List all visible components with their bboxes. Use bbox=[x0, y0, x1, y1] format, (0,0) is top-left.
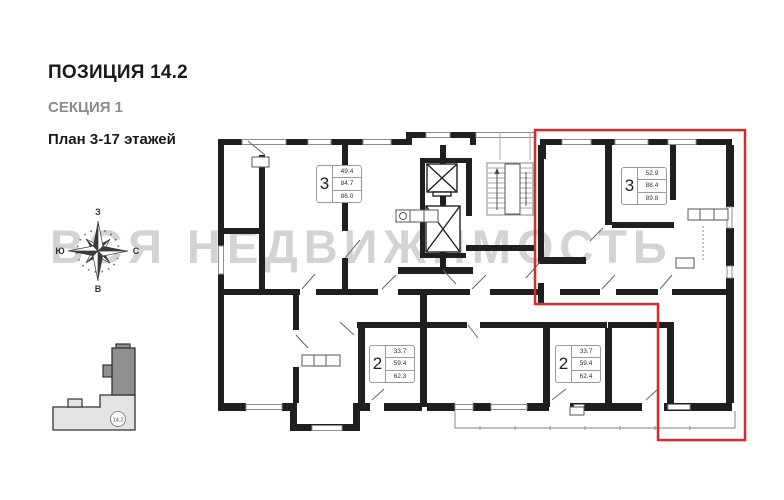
apartment-label-3room-highlighted: 3 52.9 88.4 89.8 bbox=[621, 167, 667, 205]
room-count: 2 bbox=[556, 346, 572, 382]
apartment-label-2room-right: 2 33.7 59.4 62.4 bbox=[555, 345, 601, 383]
apartment-label-3room-left: 3 49.4 84.7 86.0 bbox=[316, 165, 362, 203]
room-count: 2 bbox=[370, 346, 386, 382]
total-area: 62.3 bbox=[386, 371, 414, 382]
area: 59.4 bbox=[386, 358, 414, 370]
apartment-label-2room-left: 2 33.7 59.4 62.3 bbox=[369, 345, 415, 383]
balcony-railing bbox=[455, 411, 735, 430]
room-count: 3 bbox=[622, 168, 638, 204]
floor-plan-drawing bbox=[0, 0, 784, 500]
living-area: 52.9 bbox=[638, 168, 666, 180]
area: 59.4 bbox=[572, 358, 600, 370]
total-area: 86.0 bbox=[333, 191, 361, 202]
area: 84.7 bbox=[333, 178, 361, 190]
total-area: 89.8 bbox=[638, 193, 666, 204]
living-area: 49.4 bbox=[333, 166, 361, 178]
area: 88.4 bbox=[638, 180, 666, 192]
elevator-shafts bbox=[426, 164, 460, 252]
staircase bbox=[487, 132, 533, 215]
room-count: 3 bbox=[317, 166, 333, 202]
living-area: 33.7 bbox=[386, 346, 414, 358]
floor-plan-page: ПОЗИЦИЯ 14.2 СЕКЦИЯ 1 План 3-17 этажей В… bbox=[0, 0, 784, 500]
total-area: 62.4 bbox=[572, 371, 600, 382]
living-area: 33.7 bbox=[572, 346, 600, 358]
